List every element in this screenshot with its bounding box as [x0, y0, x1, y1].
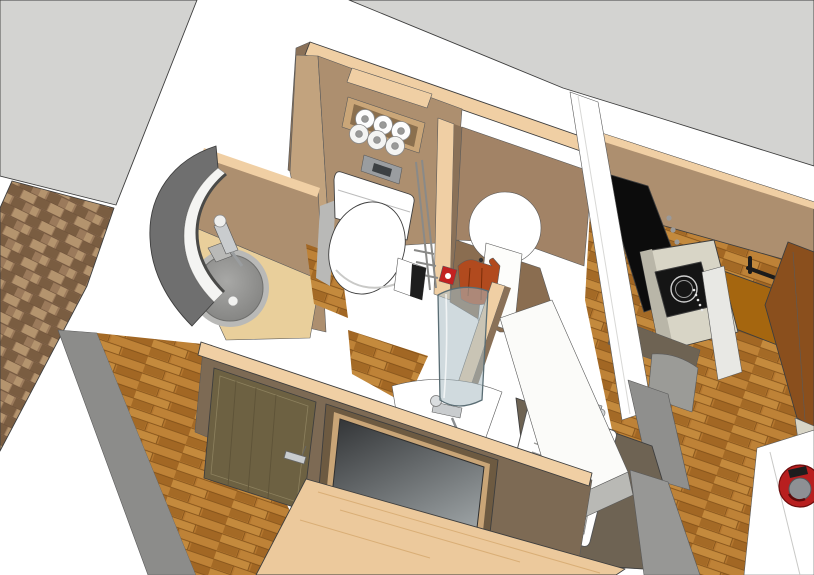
- faucet-cap: [214, 215, 226, 227]
- coat-hook: [479, 258, 483, 262]
- roll-core: [374, 137, 381, 144]
- knob: [666, 215, 671, 220]
- roll-core: [398, 128, 405, 135]
- dot: [697, 299, 700, 302]
- screenshot-root: [0, 0, 814, 575]
- dot: [693, 289, 696, 292]
- dot: [701, 309, 704, 312]
- roll-core: [362, 116, 369, 123]
- hook-item-label: [445, 273, 451, 279]
- basin-drain: [228, 296, 238, 306]
- 3d-viewport[interactable]: [0, 0, 814, 575]
- dot: [695, 294, 698, 297]
- roll-core: [380, 122, 387, 129]
- dot: [699, 304, 702, 307]
- knob: [674, 239, 679, 244]
- roll-core: [392, 143, 399, 150]
- roll-core: [356, 131, 363, 138]
- knob: [670, 227, 675, 232]
